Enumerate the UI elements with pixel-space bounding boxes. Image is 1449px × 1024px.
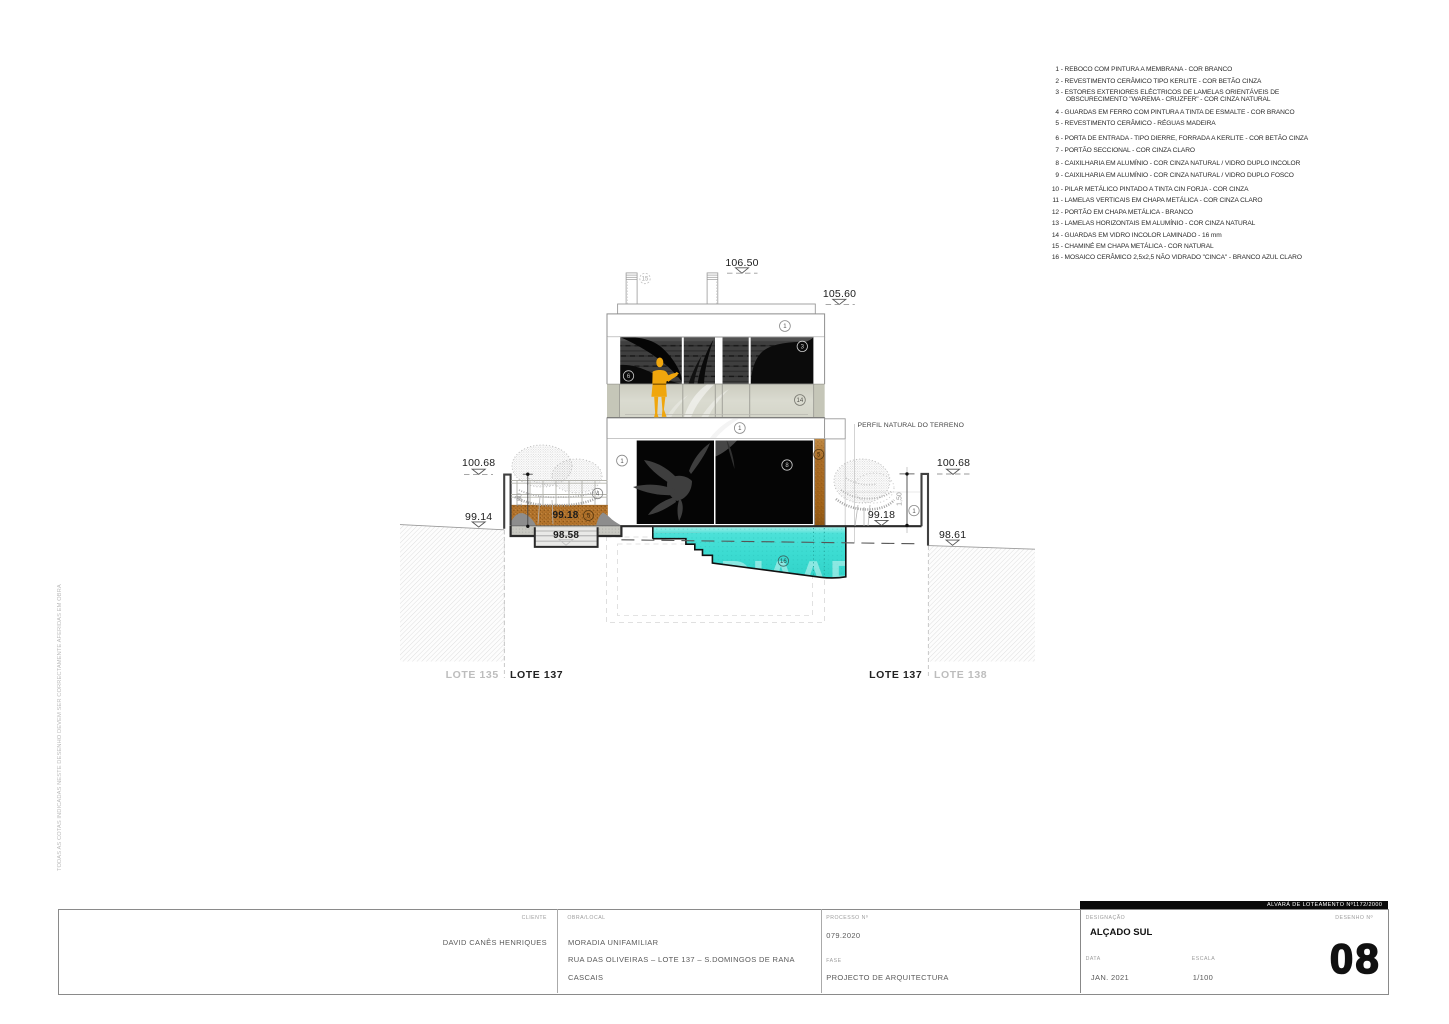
svg-text:1,50: 1,50 <box>517 493 524 507</box>
svg-text:1,50: 1,50 <box>897 492 904 506</box>
svg-text:14: 14 <box>797 398 804 404</box>
svg-text:16: 16 <box>780 559 787 565</box>
svg-text:15: 15 <box>642 277 649 283</box>
svg-text:DIAAP: DIAAP <box>720 552 859 601</box>
svg-text:1: 1 <box>912 509 916 515</box>
